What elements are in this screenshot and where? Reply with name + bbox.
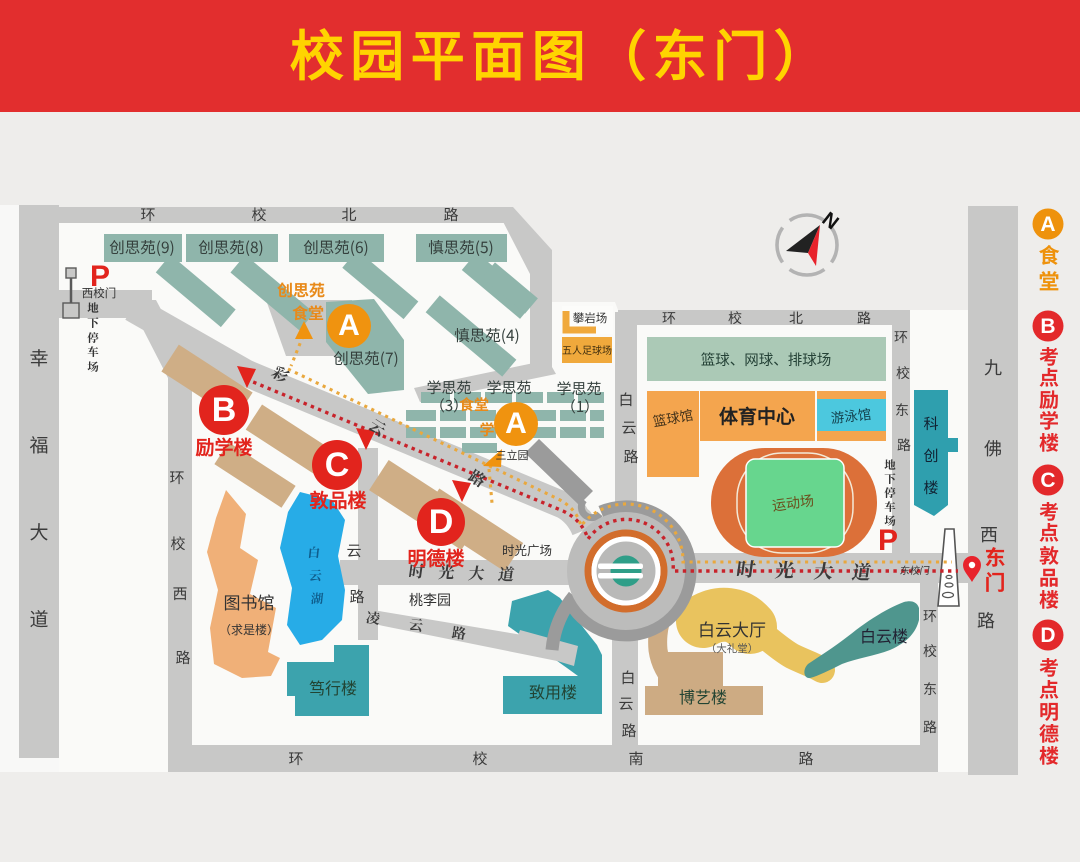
svg-text:创思苑(9): 创思苑(9) — [109, 236, 175, 258]
svg-text:路: 路 — [451, 622, 468, 644]
svg-text:时光广场: 时光广场 — [502, 544, 552, 558]
svg-text:博艺楼: 博艺楼 — [679, 689, 727, 707]
svg-text:学: 学 — [479, 419, 494, 440]
svg-text:B: B — [212, 391, 237, 429]
svg-text:白云楼: 白云楼 — [860, 628, 908, 646]
svg-text:路: 路 — [897, 435, 911, 455]
svg-text:科: 科 — [923, 413, 938, 434]
svg-text:道: 道 — [850, 558, 873, 585]
svg-text:路: 路 — [623, 446, 638, 467]
svg-text:环: 环 — [894, 327, 908, 347]
svg-text:白: 白 — [620, 667, 635, 688]
svg-text:楼: 楼 — [1039, 740, 1059, 769]
svg-text:校园平面图（东门）: 校园平面图（东门） — [290, 27, 835, 87]
svg-text:大: 大 — [29, 518, 48, 545]
svg-text:慎思苑(4): 慎思苑(4) — [454, 324, 520, 346]
svg-text:云: 云 — [346, 540, 361, 561]
svg-text:P: P — [878, 524, 898, 557]
svg-text:学思苑: 学思苑 — [486, 377, 531, 398]
svg-text:路: 路 — [443, 204, 458, 225]
svg-text:路: 路 — [621, 720, 636, 741]
svg-text:C: C — [325, 446, 350, 484]
svg-text:九: 九 — [984, 354, 1002, 380]
svg-text:三立园: 三立园 — [496, 448, 529, 462]
svg-text:慎思苑(5): 慎思苑(5) — [428, 236, 494, 258]
svg-text:东: 东 — [895, 400, 909, 420]
svg-text:佛: 佛 — [984, 435, 1002, 461]
svg-text:创思苑(8): 创思苑(8) — [198, 236, 264, 258]
svg-text:D: D — [1040, 624, 1055, 647]
svg-text:时: 时 — [735, 555, 758, 582]
svg-text:创: 创 — [923, 445, 938, 466]
svg-text:地: 地 — [87, 300, 99, 316]
svg-text:路: 路 — [349, 586, 364, 607]
svg-text:励学楼: 励学楼 — [195, 436, 252, 459]
svg-text:D: D — [429, 503, 454, 541]
svg-text:B: B — [1040, 315, 1055, 338]
svg-text:图书馆: 图书馆 — [224, 594, 275, 613]
svg-text:创思苑: 创思苑 — [277, 277, 325, 301]
svg-text:环: 环 — [288, 748, 303, 769]
svg-text:创思苑(7): 创思苑(7) — [333, 347, 399, 369]
svg-text:楼: 楼 — [1039, 427, 1059, 456]
svg-text:A: A — [338, 309, 360, 342]
svg-text:创思苑(6): 创思苑(6) — [303, 236, 369, 258]
svg-text:路: 路 — [798, 748, 813, 769]
svg-text:笃行楼: 笃行楼 — [309, 680, 357, 698]
svg-text:桃李园: 桃李园 — [409, 592, 451, 608]
svg-text:湖: 湖 — [310, 589, 325, 607]
svg-text:云: 云 — [621, 417, 636, 438]
svg-text:白云大厅: 白云大厅 — [698, 621, 766, 640]
svg-text:白: 白 — [307, 543, 321, 561]
svg-text:校: 校 — [472, 748, 487, 769]
svg-text:体育中心: 体育中心 — [719, 405, 795, 428]
svg-text:环: 环 — [140, 204, 155, 225]
svg-text:大: 大 — [467, 561, 486, 584]
svg-text:北: 北 — [789, 308, 803, 328]
svg-text:场: 场 — [87, 359, 99, 375]
svg-text:校: 校 — [728, 308, 742, 328]
svg-text:明德楼: 明德楼 — [407, 547, 464, 570]
svg-text:西: 西 — [172, 583, 187, 604]
svg-text:食堂: 食堂 — [459, 394, 489, 415]
svg-text:楼: 楼 — [923, 477, 938, 498]
svg-text:食堂: 食堂 — [292, 300, 324, 324]
svg-text:五人足球场: 五人足球场 — [562, 344, 612, 357]
svg-text:（大礼堂）: （大礼堂） — [706, 642, 759, 655]
svg-text:A: A — [505, 407, 527, 440]
svg-text:车: 车 — [87, 344, 99, 360]
svg-text:环: 环 — [662, 308, 676, 328]
svg-text:北: 北 — [341, 204, 356, 225]
svg-text:攀岩场: 攀岩场 — [573, 311, 608, 325]
svg-text:篮球、网球、排球场: 篮球、网球、排球场 — [701, 351, 832, 369]
svg-text:路: 路 — [857, 308, 871, 328]
svg-text:校: 校 — [923, 641, 937, 661]
svg-text:东: 东 — [923, 679, 937, 699]
svg-text:道: 道 — [29, 605, 48, 632]
svg-text:（求是楼）: （求是楼） — [219, 622, 279, 637]
svg-text:白: 白 — [618, 389, 633, 410]
svg-text:C: C — [1040, 469, 1055, 492]
svg-text:环: 环 — [923, 606, 937, 626]
svg-text:校: 校 — [896, 363, 910, 383]
svg-text:光: 光 — [774, 556, 797, 583]
svg-text:东校门: 东校门 — [899, 564, 931, 577]
svg-text:门: 门 — [985, 567, 1006, 597]
svg-text:致用楼: 致用楼 — [529, 684, 577, 702]
svg-text:云: 云 — [618, 693, 633, 714]
svg-text:道: 道 — [497, 562, 516, 585]
svg-text:路: 路 — [923, 717, 937, 737]
svg-text:（1）: （1） — [561, 396, 599, 417]
svg-text:大: 大 — [812, 557, 835, 584]
svg-text:堂: 堂 — [1039, 266, 1060, 296]
svg-text:福: 福 — [29, 431, 48, 458]
svg-text:校: 校 — [170, 533, 185, 554]
svg-text:P: P — [90, 260, 110, 293]
svg-text:A: A — [1040, 213, 1055, 236]
svg-text:环: 环 — [169, 467, 184, 488]
svg-text:校: 校 — [251, 204, 266, 225]
svg-text:敦品楼: 敦品楼 — [309, 489, 366, 512]
svg-text:路: 路 — [977, 607, 995, 633]
svg-text:楼: 楼 — [1039, 584, 1059, 613]
svg-text:幸: 幸 — [29, 344, 48, 371]
svg-text:下: 下 — [87, 315, 99, 331]
svg-text:路: 路 — [175, 647, 190, 668]
svg-text:南: 南 — [628, 748, 643, 769]
